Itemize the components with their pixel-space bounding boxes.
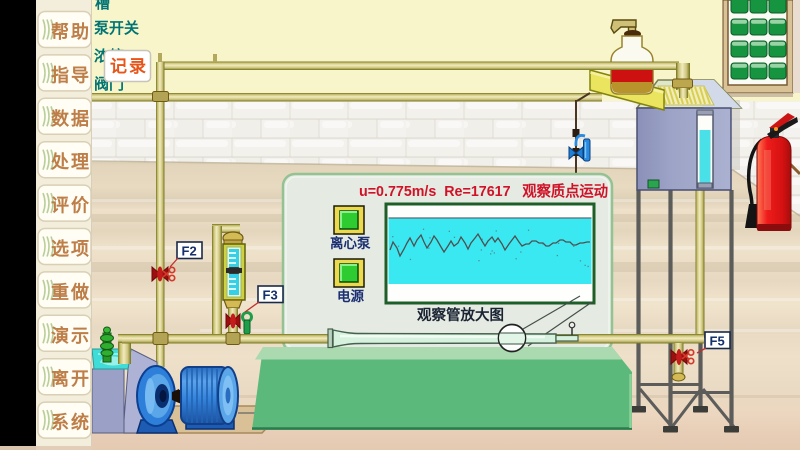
svg-text:指导: 指导	[51, 64, 91, 85]
svg-text:离开: 离开	[51, 368, 91, 389]
svg-text:帮助: 帮助	[51, 21, 91, 42]
svg-text:演示: 演示	[51, 325, 91, 346]
svg-text:重做: 重做	[51, 281, 91, 302]
svg-text:系统: 系统	[51, 412, 91, 433]
svg-text:数据: 数据	[51, 108, 91, 129]
svg-text:选项: 选项	[51, 239, 91, 259]
svg-text:评价: 评价	[51, 196, 91, 216]
svg-text:处理: 处理	[50, 151, 91, 172]
